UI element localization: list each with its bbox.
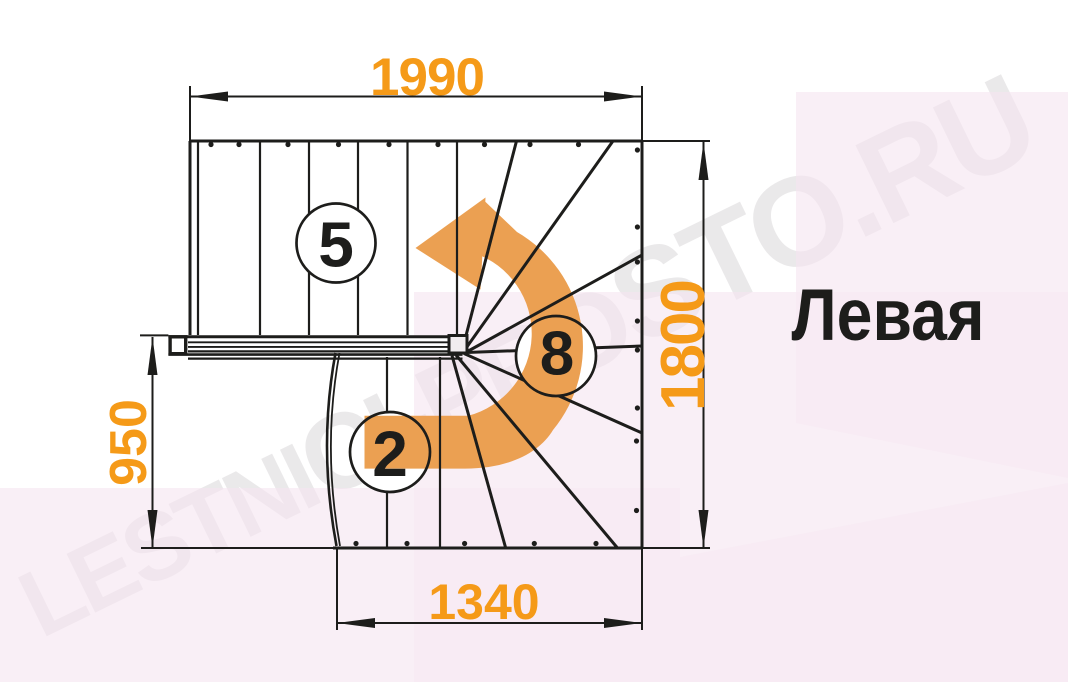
svg-text:8: 8 xyxy=(540,320,574,389)
svg-text:Левая: Левая xyxy=(792,275,985,356)
svg-text:5: 5 xyxy=(318,209,354,281)
svg-text:1990: 1990 xyxy=(370,48,484,107)
svg-text:1340: 1340 xyxy=(428,574,539,630)
svg-text:2: 2 xyxy=(372,418,408,490)
svg-text:1800: 1800 xyxy=(649,281,718,411)
svg-text:950: 950 xyxy=(100,399,158,486)
